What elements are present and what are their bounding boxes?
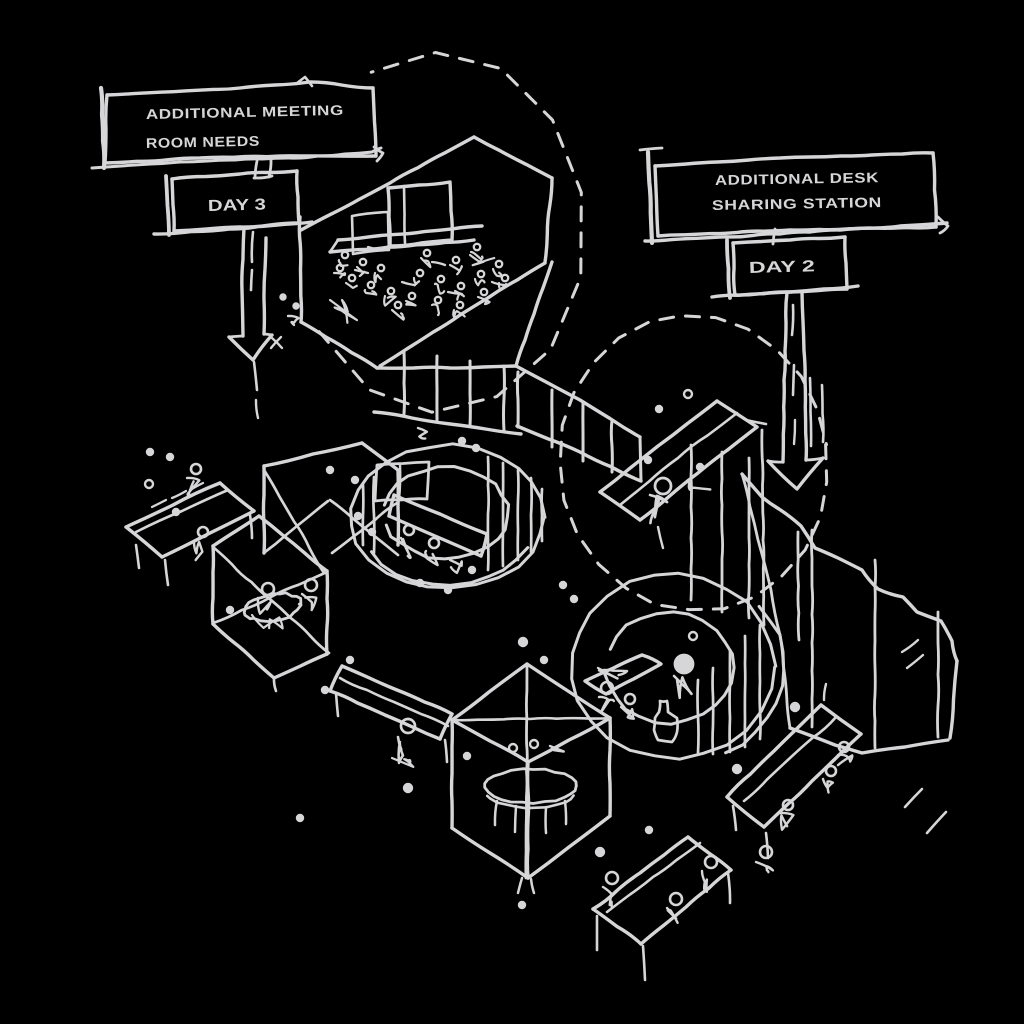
svg-text:SHARING STATION: SHARING STATION bbox=[712, 194, 882, 213]
svg-text:DAY 3: DAY 3 bbox=[208, 196, 267, 215]
svg-text:ADDITIONAL DESK: ADDITIONAL DESK bbox=[715, 169, 879, 188]
svg-text:DAY 2: DAY 2 bbox=[749, 258, 816, 277]
svg-text:ROOM NEEDS: ROOM NEEDS bbox=[146, 133, 260, 151]
